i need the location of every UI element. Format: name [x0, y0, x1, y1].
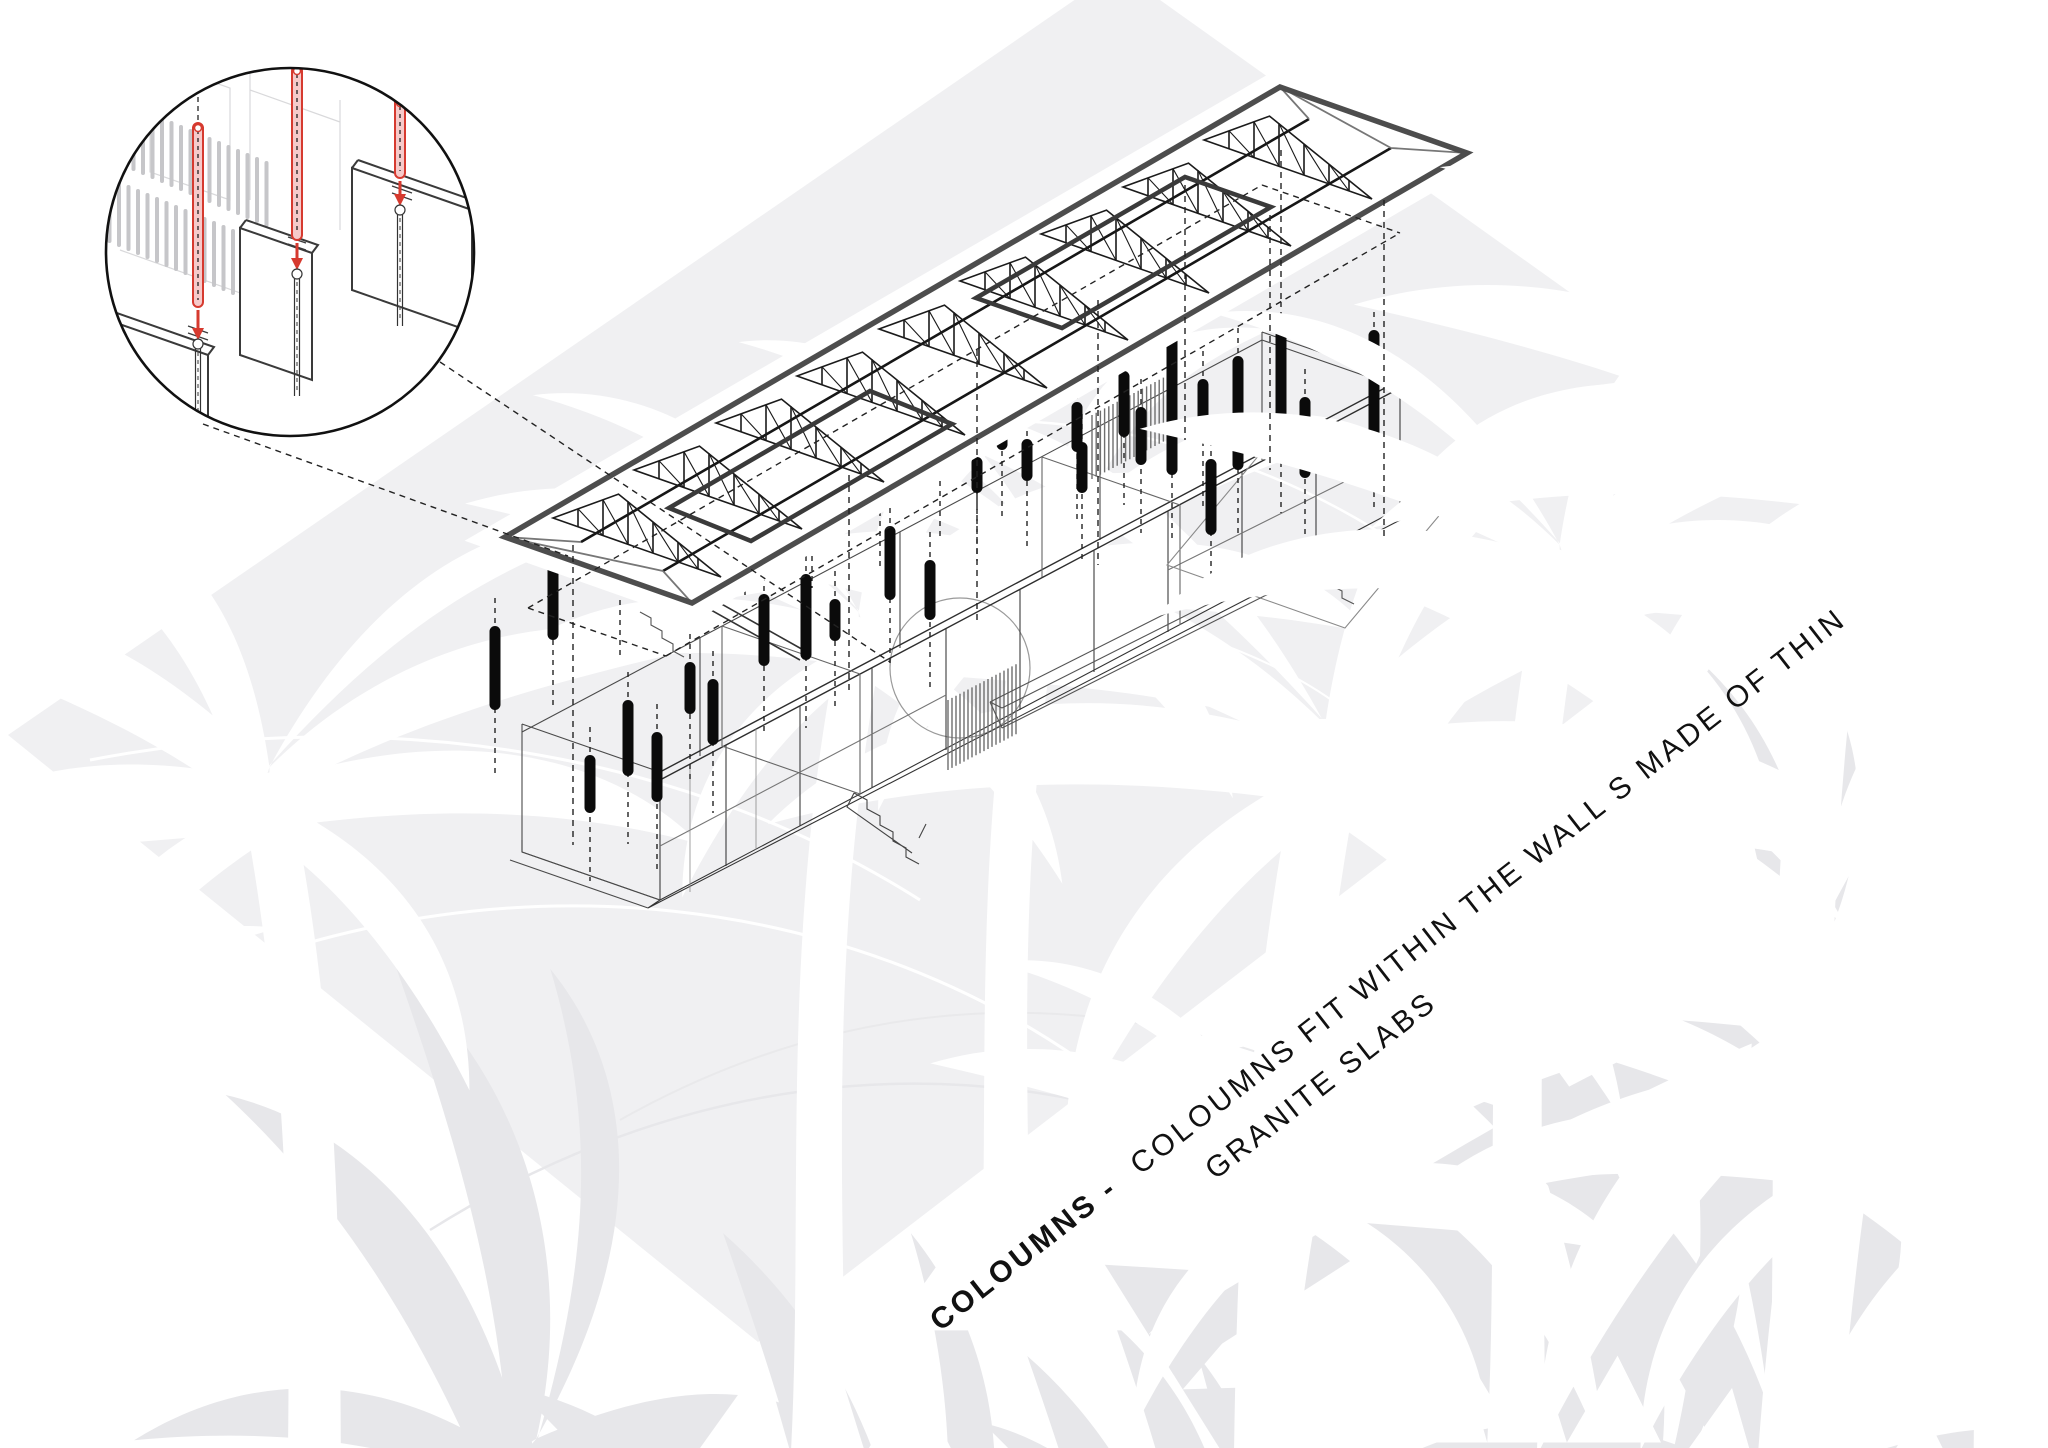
red-column-capsule: [193, 123, 203, 307]
column-capsule: [1136, 407, 1147, 465]
column-capsule: [490, 626, 501, 710]
column-capsule: [708, 679, 719, 745]
column-capsule: [830, 599, 841, 641]
column-capsule: [623, 700, 634, 776]
column-capsule: [885, 526, 896, 600]
column-capsule: [585, 755, 596, 813]
column-capsule: [652, 732, 663, 802]
column-capsule: [1119, 371, 1130, 437]
architectural-axonometric-drawing: COLOUMNS - COLOUMNS FIT WITHIN THE WALL …: [0, 0, 2048, 1448]
column-capsule: [759, 594, 770, 666]
column-capsule: [1167, 331, 1178, 475]
axonometric-diagram-page: COLOUMNS - COLOUMNS FIT WITHIN THE WALL …: [0, 0, 2048, 1448]
column-capsule: [801, 574, 812, 660]
column-capsule: [925, 560, 936, 620]
column-capsule: [685, 662, 696, 714]
column-capsule: [1077, 442, 1088, 493]
column-capsule: [1206, 459, 1217, 535]
